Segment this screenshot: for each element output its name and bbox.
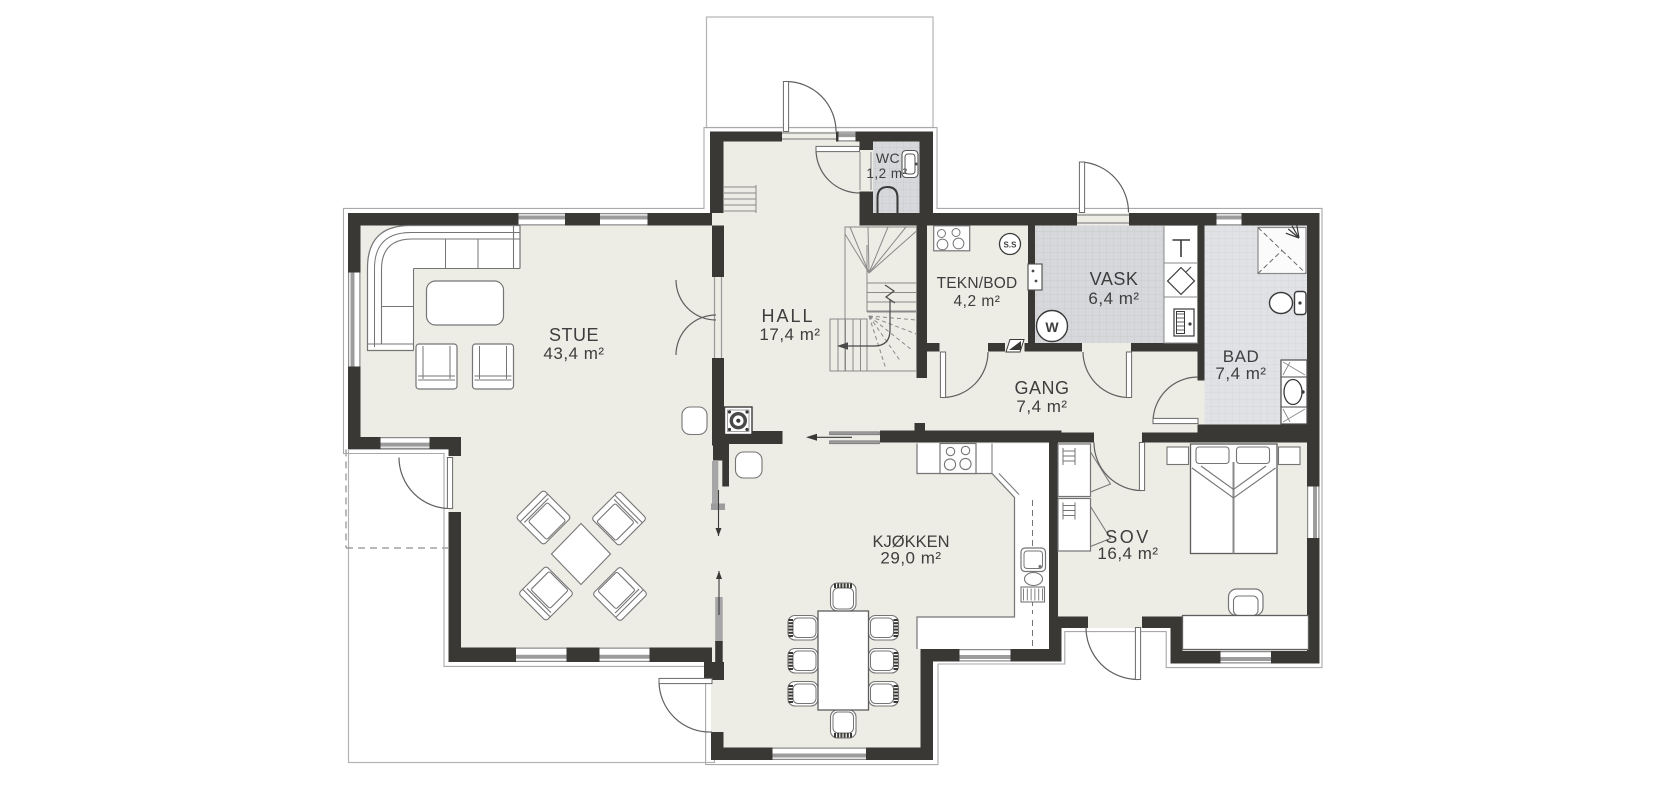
- svg-text:GANG: GANG: [1014, 378, 1069, 398]
- svg-text:W: W: [1045, 319, 1059, 335]
- svg-text:S.S: S.S: [1004, 241, 1018, 250]
- svg-text:7,4 m²: 7,4 m²: [1016, 397, 1067, 416]
- svg-text:16,4 m²: 16,4 m²: [1097, 544, 1158, 563]
- svg-text:VASK: VASK: [1090, 269, 1139, 289]
- svg-text:4,2 m²: 4,2 m²: [954, 293, 1001, 310]
- svg-text:43,4 m²: 43,4 m²: [543, 344, 604, 363]
- svg-text:7,4 m²: 7,4 m²: [1215, 364, 1266, 383]
- svg-text:1,2 m²: 1,2 m²: [866, 166, 907, 181]
- svg-text:29,0 m²: 29,0 m²: [880, 549, 941, 568]
- svg-text:TEKN/BOD: TEKN/BOD: [937, 275, 1018, 292]
- svg-text:6,4 m²: 6,4 m²: [1088, 289, 1139, 308]
- svg-text:WC: WC: [876, 150, 900, 166]
- svg-text:17,4 m²: 17,4 m²: [759, 325, 820, 344]
- svg-text:STUE: STUE: [549, 325, 599, 345]
- svg-text:HALL: HALL: [761, 306, 814, 326]
